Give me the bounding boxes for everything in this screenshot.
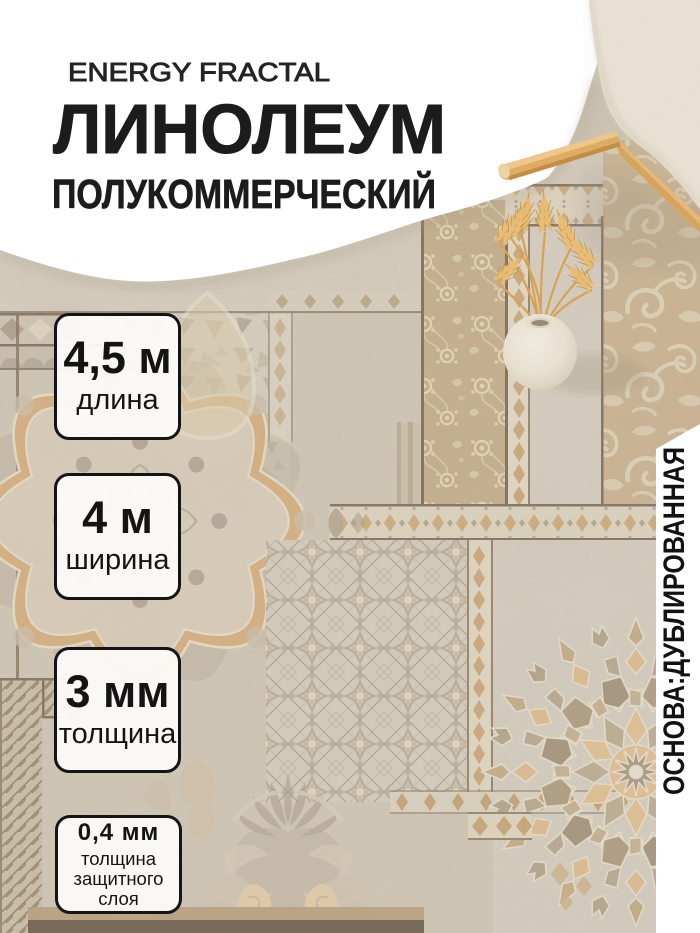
svg-text:ЛИНОЛЕУМ: ЛИНОЛЕУМ	[53, 90, 446, 168]
svg-text:ПОЛУКОММЕРЧЕСКИЙ: ПОЛУКОММЕРЧЕСКИЙ	[52, 171, 436, 217]
svg-text:ENERGY FRACTAL: ENERGY FRACTAL	[68, 57, 330, 87]
svg-text:ОСНОВА:ДУБЛИРОВАННАЯ: ОСНОВА:ДУБЛИРОВАННАЯ	[658, 447, 691, 795]
